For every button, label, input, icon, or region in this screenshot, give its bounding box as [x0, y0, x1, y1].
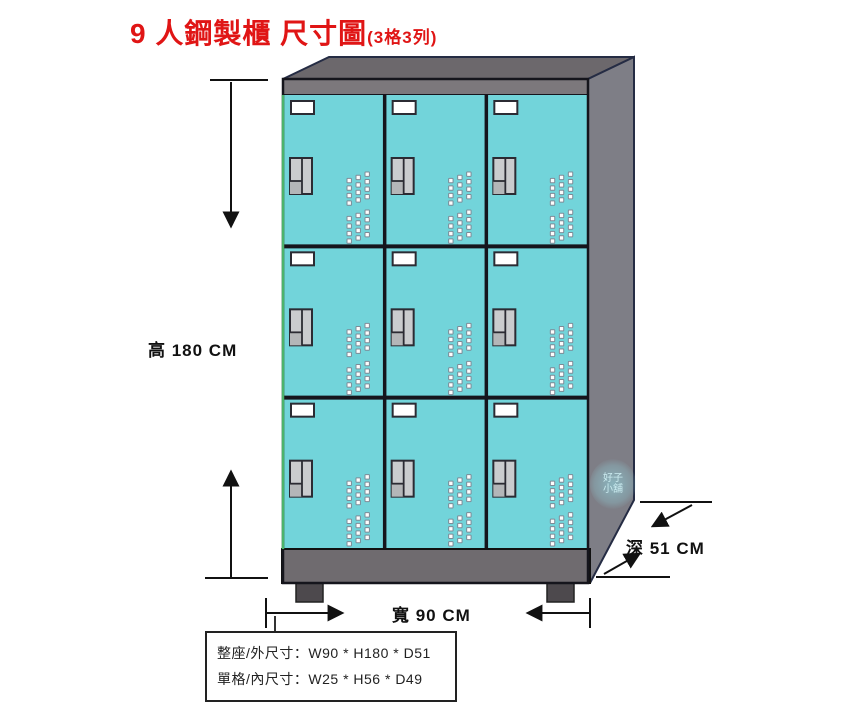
cabinet-side-panel	[588, 57, 634, 583]
depth-dimension-label: 深 51 CM	[626, 534, 705, 559]
cabinet-base	[282, 549, 590, 583]
door-handle	[290, 158, 312, 194]
door-handle	[392, 309, 414, 345]
depth-arrow-down-left	[653, 505, 692, 526]
spec-line-outer-size: 整座/外尺寸：W90 * H180 * D51	[217, 640, 445, 666]
cabinet-foot-left	[296, 583, 323, 602]
name-plate	[291, 252, 314, 265]
name-plate	[494, 101, 517, 114]
cabinet-top-band	[283, 79, 588, 95]
locker-dimension-diagram: 9 人鋼製櫃 尺寸圖 (3格3列) 高 180 CM 寬 90 CM 深 51 …	[0, 0, 856, 720]
name-plate	[291, 404, 314, 417]
spec-line-inner-size: 單格/內尺寸：W25 * H56 * D49	[217, 666, 445, 692]
spec-box: 整座/外尺寸：W90 * H180 * D51 單格/內尺寸：W25 * H56…	[205, 631, 457, 702]
door-handle	[290, 461, 312, 497]
name-plate	[494, 404, 517, 417]
name-plate	[393, 404, 416, 417]
door-handle	[392, 158, 414, 194]
door-handle	[290, 309, 312, 345]
door-handle	[493, 158, 515, 194]
height-dimension-label: 高 180 CM	[148, 336, 237, 361]
door-handle	[493, 461, 515, 497]
spec-box-leader-line	[274, 616, 276, 631]
cabinet-top-surface	[283, 57, 634, 79]
name-plate	[393, 252, 416, 265]
name-plate	[494, 252, 517, 265]
width-dimension-label: 寬 90 CM	[392, 601, 471, 626]
cabinet-foot-right	[547, 583, 574, 602]
name-plate	[291, 101, 314, 114]
door-handle	[392, 461, 414, 497]
name-plate	[393, 101, 416, 114]
door-handle	[493, 309, 515, 345]
door-grid-background	[283, 95, 588, 549]
